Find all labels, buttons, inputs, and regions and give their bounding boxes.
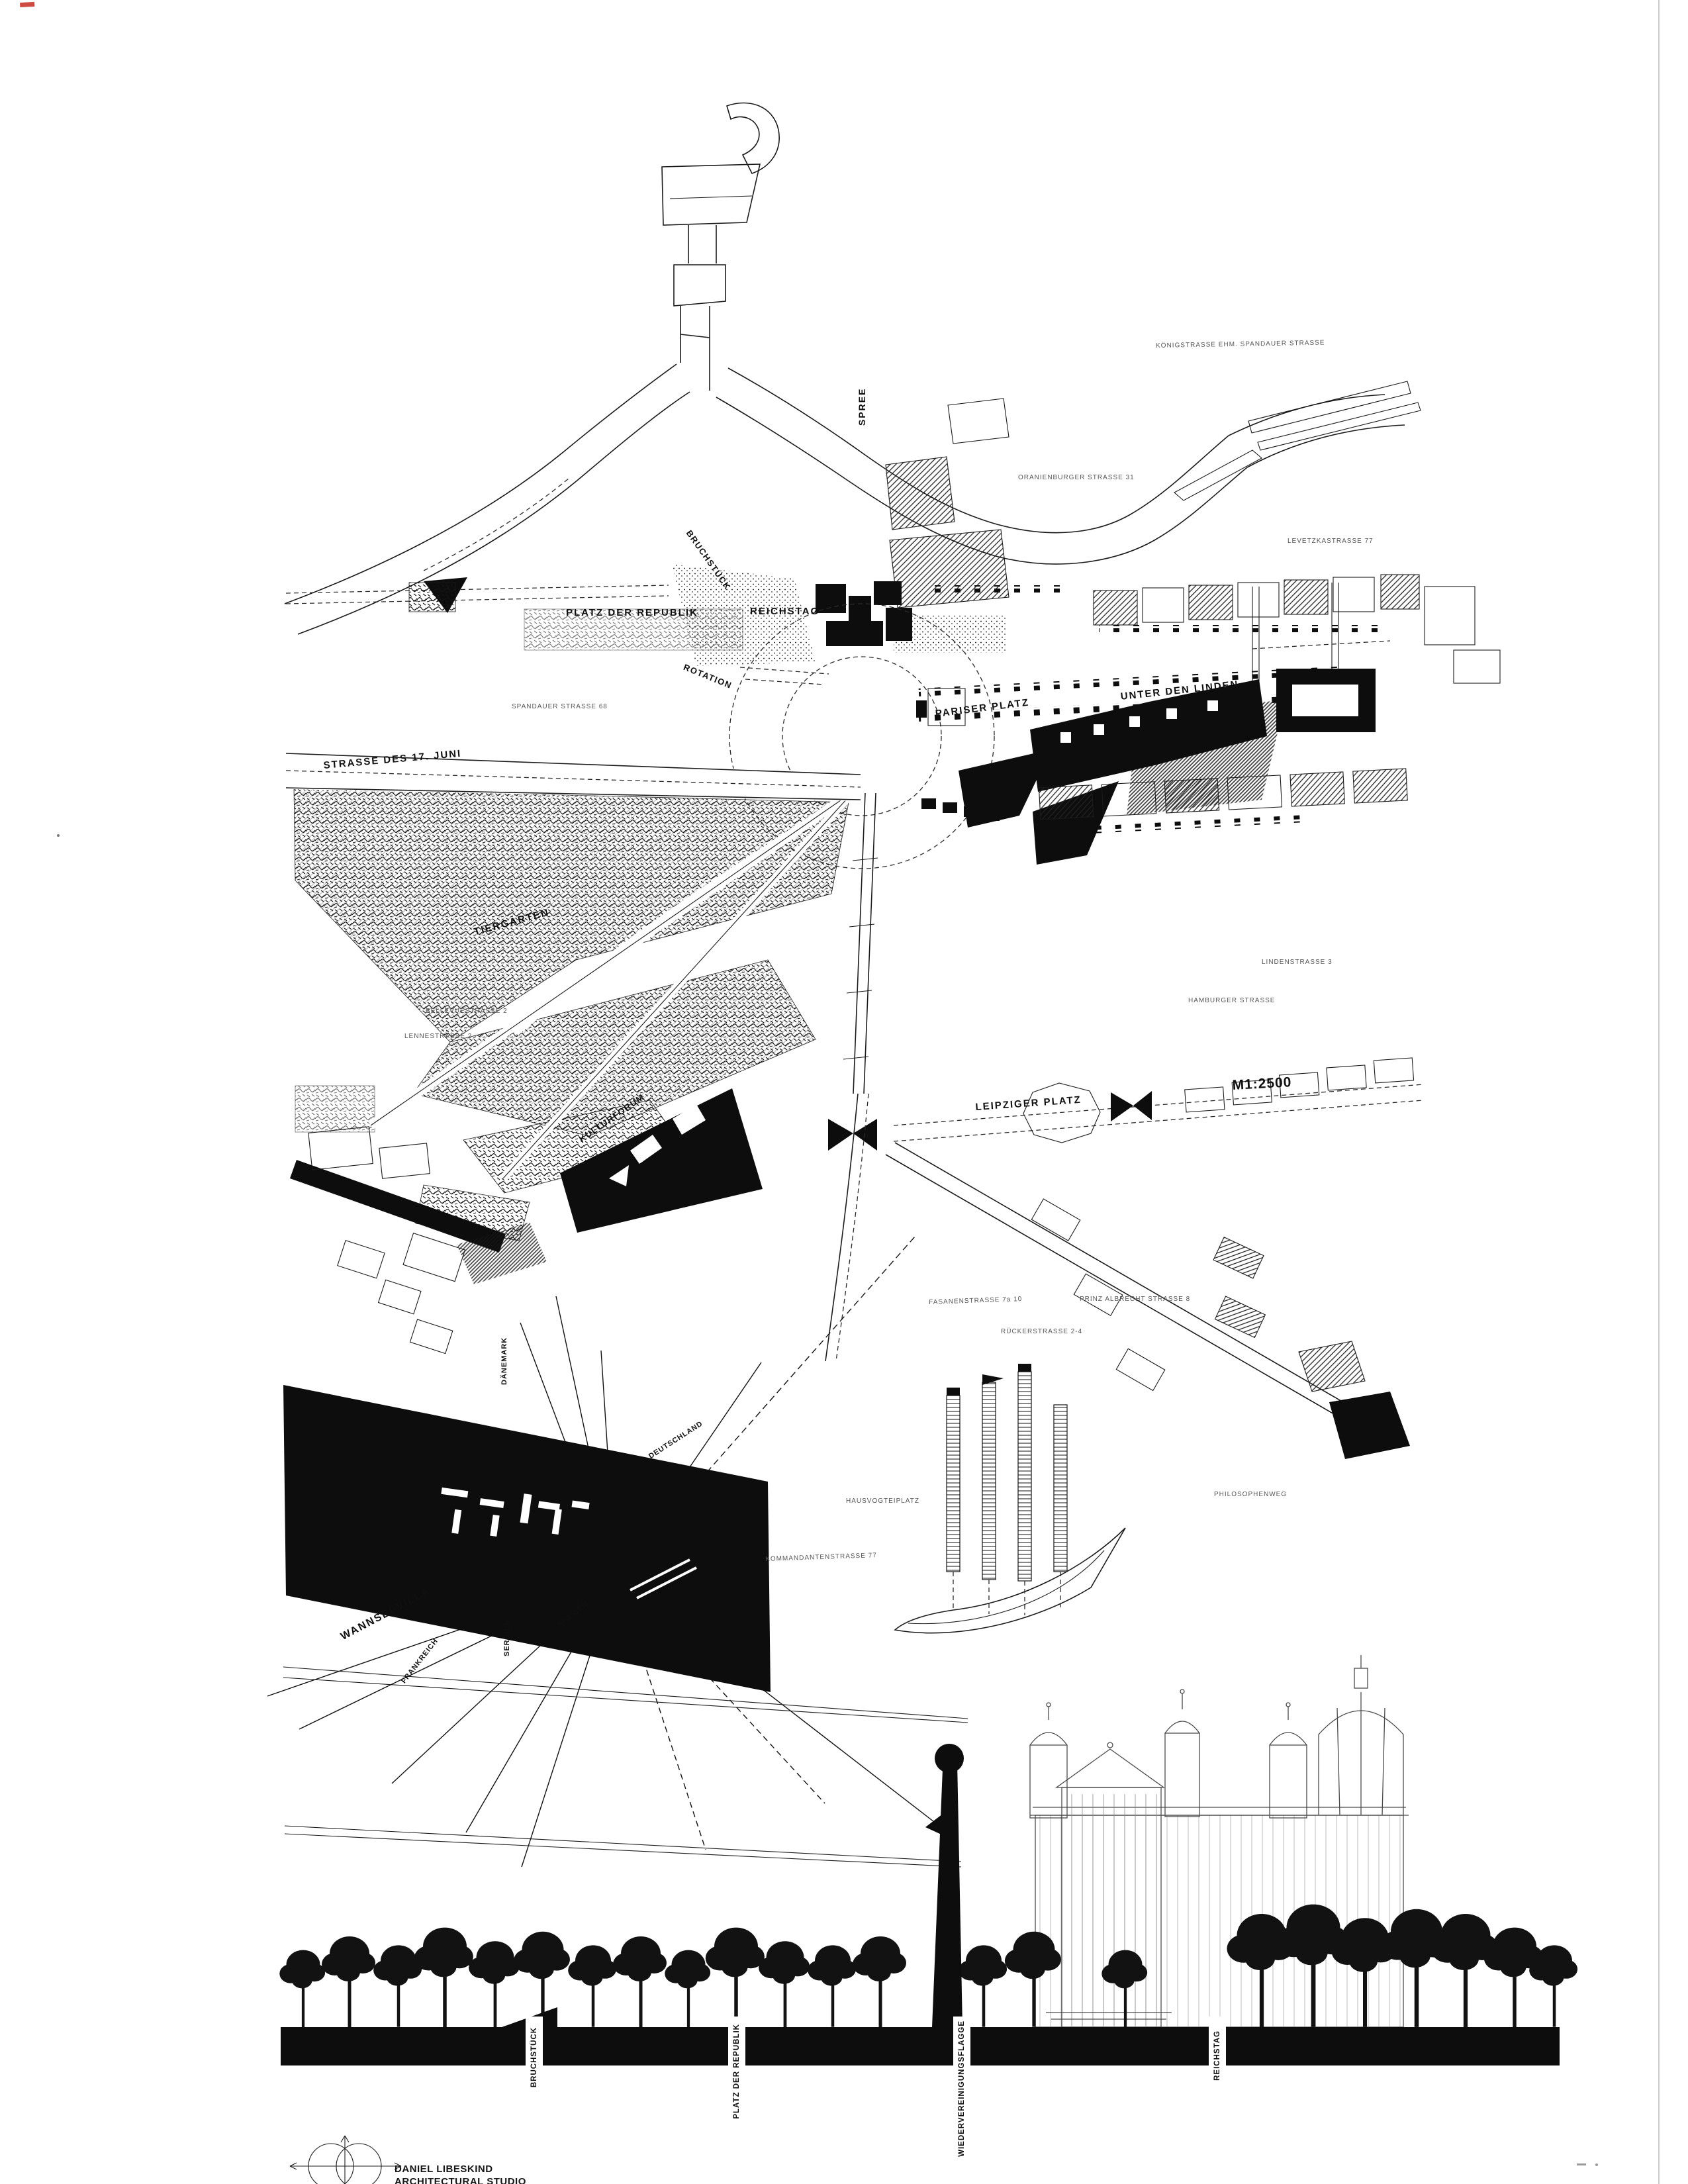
section-tag-bruchstueck: BRUCHSTÜCK bbox=[526, 2017, 543, 2099]
street-label-philosophenweg: PHILOSOPHENWEG bbox=[1214, 1491, 1287, 1498]
place-label-reichstag: REICHSTAG bbox=[750, 606, 820, 617]
river-label-spree: SPREE bbox=[857, 388, 867, 426]
country-label-daenemark: DÄNEMARK bbox=[500, 1337, 508, 1385]
tiergarten-park bbox=[286, 752, 861, 1193]
black-plane bbox=[283, 1385, 771, 1692]
section-tag-wiedervereinigungsflagge: WIEDERVEREINIGUNGSFLAGGE bbox=[953, 2017, 970, 2161]
reichstag-plan-figure bbox=[816, 581, 912, 646]
street-label-spandauer: SPANDAUER STRASSE 68 bbox=[512, 703, 608, 710]
street-label-lennestrasse: LENNESTRASSE 2 bbox=[404, 1033, 472, 1040]
compass-icon bbox=[290, 2136, 401, 2184]
street-label-lindenstrasse: LINDENSTRASSE 3 bbox=[1262, 959, 1333, 966]
drawing-sheet: KÖNIGSTRASSE EHM. SPANDAUER STRASSE SPRE… bbox=[0, 0, 1688, 2184]
street-label-hamburger: HAMBURGER STRASSE bbox=[1188, 997, 1275, 1004]
elevation bbox=[279, 1655, 1577, 2065]
place-label-platz-der-republik: PLATZ DER REPUBLIK bbox=[566, 607, 698, 618]
flask-figure bbox=[662, 103, 779, 391]
credit-studio-name: ARCHITECTURAL STUDIO bbox=[395, 2176, 526, 2184]
street-label-levetzka: LEVETZKASTRASSE 77 bbox=[1288, 538, 1374, 545]
ground-bar bbox=[281, 2027, 1560, 2065]
street-label-rueckerstrasse: RÜCKERSTRASSE 2-4 bbox=[1001, 1328, 1082, 1335]
scale-label: M1:2500 bbox=[1232, 1074, 1292, 1094]
bridge-line bbox=[283, 1667, 968, 1723]
section-tag-platz-der-republik: PLATZ DER REPUBLIK bbox=[728, 2017, 745, 2126]
street-label-prinz-albrecht: PRINZ ALBRECHT STRASSE 8 bbox=[1080, 1296, 1190, 1303]
country-label-serbien: SERBIEN bbox=[503, 1619, 511, 1656]
section-tag-reichstag: REICHSTAG bbox=[1209, 2017, 1226, 2095]
spree-river bbox=[285, 103, 1421, 653]
flag-perspective bbox=[895, 1364, 1125, 1633]
map-drawing bbox=[0, 0, 1688, 2184]
street-label-hausvogteiplatz: HAUSVOGTEIPLATZ bbox=[846, 1497, 919, 1505]
reichstag-facade bbox=[1030, 1655, 1409, 2027]
street-label-oranienburger: ORANIENBURGER STRASSE 31 bbox=[1018, 474, 1135, 481]
dark-tree bbox=[925, 1744, 964, 2027]
southeast-streets bbox=[825, 793, 1410, 1459]
credit-architect-name: DANIEL LIBESKIND bbox=[395, 2163, 493, 2175]
street-label-bellevuestrasse: BELLEVUESTRASSE 2 bbox=[426, 1008, 508, 1015]
scan-artifacts bbox=[20, 0, 1660, 2184]
